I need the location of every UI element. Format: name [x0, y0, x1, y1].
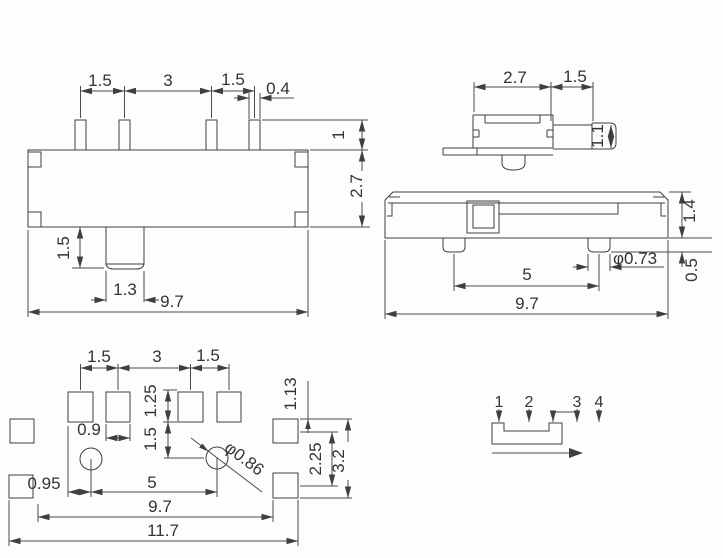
dim-front-body-height: 2.7: [347, 174, 366, 198]
schematic-slider-contact: [492, 423, 562, 444]
dim-footprint-pad-to-hole: 1.5: [141, 427, 160, 451]
dim-front-knob-width: 1.3: [113, 280, 137, 299]
schematic-pin-4-label: 4: [595, 394, 604, 411]
dim-footprint-pitch-3: 1.5: [196, 346, 220, 365]
dim-side-post-pitch: 5: [522, 265, 531, 284]
side-view: 1.4 0.5 φ0.73 5 9.7: [385, 192, 712, 319]
dim-side-body-length: 9.7: [515, 294, 539, 313]
schematic-pin-arrows: [499, 409, 599, 422]
dim-front-pitch-3: 1.5: [221, 70, 245, 89]
dim-footprint-side-pad-gap: 2.25: [306, 442, 325, 475]
drawing-canvas: 1.5 3 1.5 0.4 1 2.7 1.5 1.3 9.7 2.7 1.5 …: [0, 0, 723, 558]
slide-direction-arrow: [492, 448, 583, 458]
side-view-dimension-lines: [385, 192, 712, 319]
dim-side-post-diameter: φ0.73: [613, 249, 657, 268]
slide-switch-technical-drawing: 1.5 3 1.5 0.4 1 2.7 1.5 1.3 9.7 2.7 1.5 …: [0, 0, 723, 558]
footprint-dimension-lines: [9, 364, 352, 546]
front-view: 1.5 3 1.5 0.4 1 2.7 1.5 1.3 9.7: [28, 70, 370, 317]
dim-end-body-width: 2.7: [503, 68, 527, 87]
schematic-pin-1-label: 1: [495, 394, 504, 411]
dim-footprint-edge-to-hole: 0.95: [27, 474, 60, 493]
dim-footprint-side-pad-offset: 1.13: [281, 377, 300, 410]
dim-footprint-pad-height: 1.25: [141, 384, 160, 417]
schematic-pin-2-label: 2: [525, 394, 534, 411]
dim-front-pitch-1: 1.5: [88, 71, 112, 90]
dim-front-pin-height: 1: [329, 130, 348, 139]
dim-footprint-pitch-2: 3: [152, 347, 161, 366]
dim-side-post-height: 0.5: [682, 258, 701, 282]
dim-footprint-body-length: 9.7: [148, 497, 172, 516]
circuit-schematic: 1 2 3 4: [492, 394, 604, 458]
dim-footprint-hole-pitch: 5: [147, 473, 156, 492]
dim-front-pitch-2: 3: [163, 71, 172, 90]
dim-front-pin-width: 0.4: [266, 79, 290, 98]
dim-footprint-pitch-1: 1.5: [87, 347, 111, 366]
dim-end-knob-travel: 1.5: [563, 67, 587, 86]
dim-front-knob-height: 1.5: [54, 236, 73, 260]
dim-side-body-height: 1.4: [680, 199, 699, 223]
dim-end-knob-height: 1.1: [588, 124, 607, 148]
footprint-view: 1.5 3 1.5 0.9 1.25 1.5 1.13 2.25 3.2 φ0.…: [9, 346, 352, 546]
schematic-pin-3-label: 3: [573, 394, 582, 411]
dim-front-body-width: 9.7: [160, 292, 184, 311]
side-view-body: [385, 192, 668, 252]
dim-footprint-pad-width: 0.9: [77, 420, 101, 439]
front-view-dimension-lines: [28, 86, 370, 317]
end-view: 2.7 1.5 1.1: [443, 67, 616, 170]
dim-footprint-total-length: 11.7: [147, 521, 179, 540]
dim-footprint-side-pad-span: 3.2: [329, 449, 348, 473]
